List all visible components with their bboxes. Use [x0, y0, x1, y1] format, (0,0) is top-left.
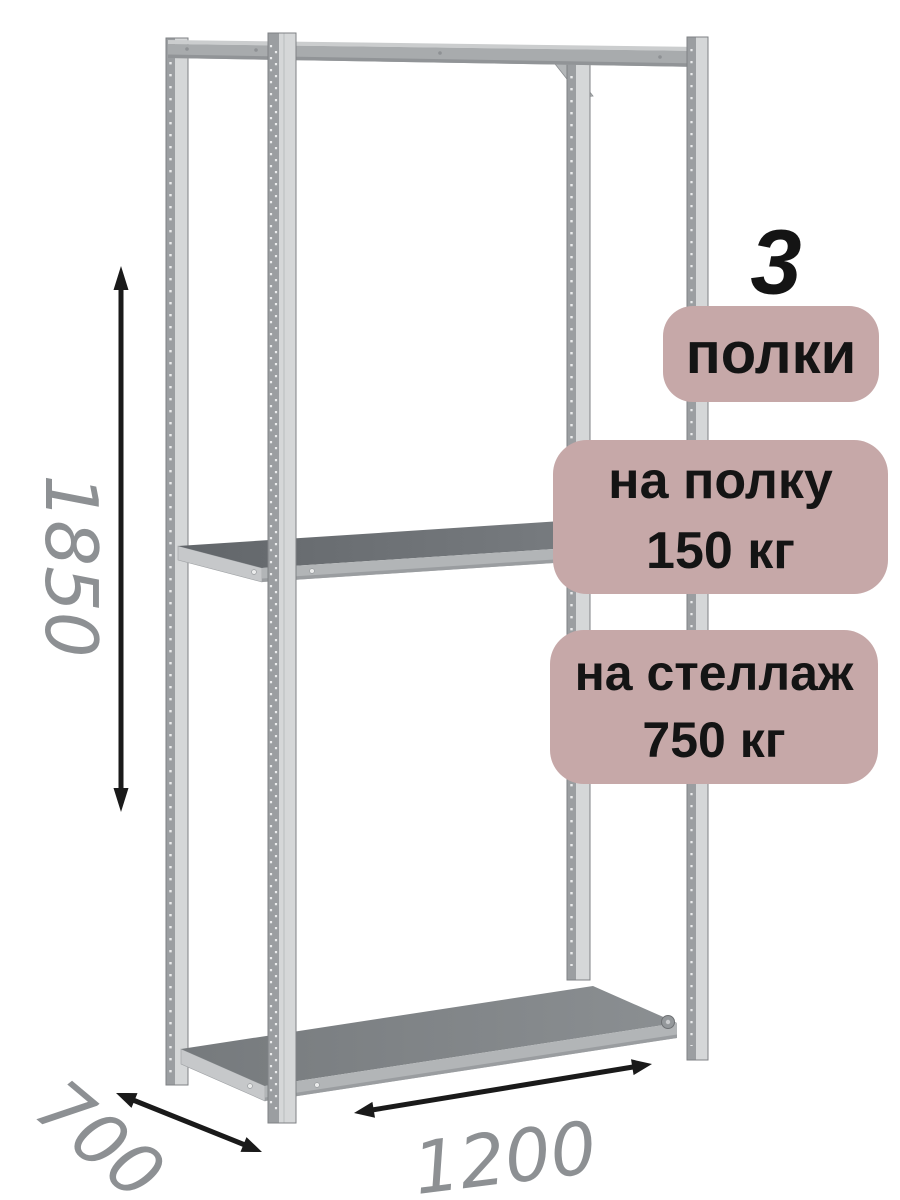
arrowhead-up: [114, 266, 129, 290]
post-front-left: [268, 33, 296, 1123]
shelf-hole: [315, 1083, 320, 1088]
rivet: [254, 48, 258, 52]
top-shelf-beam: [168, 40, 702, 67]
rivet: [438, 51, 442, 55]
load-per-rack-badge: на стеллаж 750 кг: [550, 630, 878, 784]
shelf-hole: [310, 569, 315, 574]
shelf-hole: [252, 570, 257, 575]
shelf-count-number: 3: [750, 211, 801, 316]
corner-bolt-center: [666, 1020, 670, 1024]
shelf-count-label: полки: [686, 315, 857, 393]
rack-illustration: [0, 0, 900, 1200]
rivet: [185, 47, 189, 51]
rivet: [658, 55, 662, 59]
shelf-count-badge: полки: [663, 306, 879, 402]
load-per-shelf-line1: на полку: [608, 447, 833, 517]
bottom-shelf: [181, 986, 677, 1101]
arrowhead-right: [241, 1137, 263, 1152]
load-per-rack-line2: 750 кг: [642, 707, 785, 774]
product-image: 1850 700 1200 3 полки на полку 150 кг на…: [0, 0, 900, 1200]
load-per-shelf-line2: 150 кг: [646, 517, 795, 587]
post-front-face: [279, 33, 296, 1123]
load-per-rack-line1: на стеллаж: [575, 640, 854, 707]
height-arrow: [114, 266, 129, 812]
arrowhead-left: [354, 1102, 375, 1118]
post-side-face: [268, 33, 279, 1123]
load-per-shelf-badge: на полку 150 кг: [553, 440, 888, 594]
height-dimension-label: 1850: [29, 474, 113, 657]
shelf-hole: [248, 1084, 253, 1089]
arrowhead-down: [114, 788, 129, 812]
arrowhead-right: [631, 1059, 652, 1075]
